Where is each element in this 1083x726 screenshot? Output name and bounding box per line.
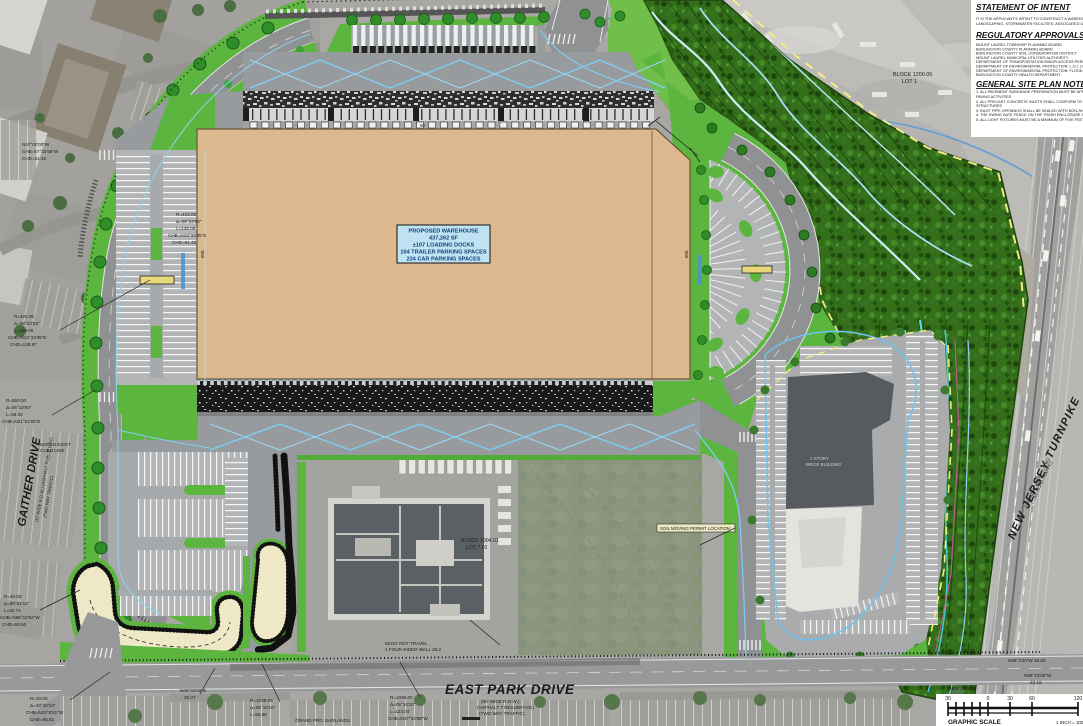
svg-text:N89°29'50"E: N89°29'50"E bbox=[950, 686, 976, 691]
svg-text:±107 LOADING DOCKS: ±107 LOADING DOCKS bbox=[413, 243, 475, 249]
svg-text:1 FOUR-SIDED WALL 28.2: 1 FOUR-SIDED WALL 28.2 bbox=[385, 647, 442, 652]
svg-text:L=59.33: L=59.33 bbox=[6, 412, 23, 417]
svg-text:608: 608 bbox=[200, 250, 205, 258]
svg-text:L=139.09: L=139.09 bbox=[176, 226, 196, 231]
svg-text:CHD=95.81: CHD=95.81 bbox=[30, 717, 55, 722]
svg-text:MATCH EXIST: MATCH EXIST bbox=[40, 442, 71, 447]
svg-text:CHB=N47°33'58"W: CHB=N47°33'58"W bbox=[388, 716, 428, 721]
svg-text:120: 120 bbox=[1074, 696, 1083, 702]
svg-text:N89°23'50"W: N89°23'50"W bbox=[1024, 673, 1052, 678]
svg-text:R=550.00: R=550.00 bbox=[6, 398, 26, 403]
svg-text:1. ALL PAVEMENT SUBGRADE PREP: 1. ALL PAVEMENT SUBGRADE PREPARATION MUS… bbox=[976, 90, 1083, 94]
svg-text:CHD=56.50: CHD=56.50 bbox=[2, 622, 27, 627]
svg-text:Δ=08°23'53": Δ=08°23'53" bbox=[14, 321, 40, 326]
svg-text:GRAND PRD. EARLANDS: GRAND PRD. EARLANDS bbox=[295, 718, 350, 723]
svg-text:CHB=N68°10'52"W: CHB=N68°10'52"W bbox=[0, 615, 40, 620]
svg-text:R=1038.00: R=1038.00 bbox=[250, 698, 273, 703]
svg-text:4. THE SWING GATE FENCE ON TH: 4. THE SWING GATE FENCE ON THE TRASH ENC… bbox=[976, 113, 1083, 117]
svg-text:R=30.00: R=30.00 bbox=[30, 696, 48, 701]
svg-text:CHD=61.45: CHD=61.45 bbox=[172, 240, 197, 245]
svg-text:MUST NOT TRAVEL: MUST NOT TRAVEL bbox=[385, 641, 428, 646]
svg-text:Δ=43°10'10": Δ=43°10'10" bbox=[30, 703, 56, 708]
svg-text:(ASPHALT 7 RESURFACE): (ASPHALT 7 RESURFACE) bbox=[477, 705, 534, 710]
svg-text:BLOCK 1904.01: BLOCK 1904.01 bbox=[461, 538, 499, 544]
svg-text:CHD=61.45: CHD=61.45 bbox=[22, 156, 47, 161]
svg-text:60: 60 bbox=[1029, 696, 1035, 702]
svg-text:437,262 SF: 437,262 SF bbox=[429, 236, 459, 242]
svg-text:N47°00'00"W: N47°00'00"W bbox=[22, 142, 50, 147]
svg-text:LOT 7.01: LOT 7.01 bbox=[466, 545, 488, 551]
svg-text:BRICK BUILDING: BRICK BUILDING bbox=[806, 462, 842, 467]
svg-text:30: 30 bbox=[945, 696, 951, 702]
svg-text:PROPOSED WAREHOUSE: PROPOSED WAREHOUSE bbox=[409, 229, 479, 235]
svg-text:STRUCTURES: STRUCTURES bbox=[976, 104, 1002, 108]
svg-text:5. ALL LIGHT FIXTURES MUST BE: 5. ALL LIGHT FIXTURES MUST BE A MINIMUM … bbox=[976, 118, 1083, 122]
svg-text:Δ=08°23'53": Δ=08°23'53" bbox=[176, 219, 202, 224]
svg-text:Δ=05°10'10": Δ=05°10'10" bbox=[390, 702, 416, 707]
svg-text:L=139.09: L=139.09 bbox=[14, 328, 34, 333]
svg-text:L=124.04: L=124.04 bbox=[390, 709, 410, 714]
svg-text:R=40.00: R=40.00 bbox=[4, 594, 22, 599]
svg-text:PAVING ACTIVITIES: PAVING ACTIVITIES bbox=[976, 95, 1012, 99]
svg-text:BURLINGTON COUNTY HEALTH DEPAR: BURLINGTON COUNTY HEALTH DEPARTMENT bbox=[976, 73, 1061, 77]
svg-text:0: 0 bbox=[987, 696, 990, 702]
svg-text:IT IS THE APPLICANT'S INTENT T: IT IS THE APPLICANT'S INTENT TO CONSTRUC… bbox=[976, 17, 1083, 21]
svg-text:LOT 1: LOT 1 bbox=[902, 79, 917, 85]
svg-text:CHD=138.97: CHD=138.97 bbox=[10, 342, 37, 347]
svg-text:CHB=N23°5'51"W: CHB=N23°5'51"W bbox=[26, 710, 64, 715]
svg-text:1 INCH = 100: 1 INCH = 100 bbox=[1056, 720, 1083, 725]
svg-text:N89°3'20"W 36.00: N89°3'20"W 36.00 bbox=[1008, 658, 1046, 663]
svg-text:1 STORY: 1 STORY bbox=[810, 456, 829, 461]
svg-text:Δ=05°10'10": Δ=05°10'10" bbox=[250, 705, 276, 710]
svg-text:REGULATORY APPROVALS: REGULATORY APPROVALS bbox=[976, 31, 1083, 40]
svg-text:Δ=89°51'15": Δ=89°51'15" bbox=[4, 601, 30, 606]
svg-text:L=62.74: L=62.74 bbox=[4, 608, 21, 613]
svg-text:R=425.00: R=425.00 bbox=[14, 314, 34, 319]
svg-text:LANDSCAPING, STORMWATER FACILI: LANDSCAPING, STORMWATER FACILITIES, ASSO… bbox=[976, 22, 1083, 26]
svg-text:(66' WIDE R.O.W.): (66' WIDE R.O.W.) bbox=[481, 699, 520, 704]
svg-text:30: 30 bbox=[1007, 696, 1013, 702]
svg-text:CURB LINE: CURB LINE bbox=[40, 448, 65, 453]
svg-text:60: 60 bbox=[420, 123, 426, 128]
svg-text:104 TRAILER PARKING SPACES: 104 TRAILER PARKING SPACES bbox=[400, 250, 486, 256]
svg-text:SOIL MOVING PERMIT LOCATION: SOIL MOVING PERMIT LOCATION bbox=[660, 526, 730, 531]
svg-text:GENERAL SITE PLAN NOTES: GENERAL SITE PLAN NOTES bbox=[976, 80, 1083, 89]
svg-text:(TWO WAY TRAFFIC): (TWO WAY TRAFFIC) bbox=[479, 711, 525, 716]
svg-text:R=433.00: R=433.00 bbox=[176, 212, 196, 217]
svg-text:EAST PARK DRIVE: EAST PARK DRIVE bbox=[445, 682, 575, 697]
svg-text:CHB=N13°33'35"E: CHB=N13°33'35"E bbox=[168, 233, 206, 238]
svg-text:R=1066.00: R=1066.00 bbox=[390, 695, 413, 700]
svg-text:CHB=57°33'58"W: CHB=57°33'58"W bbox=[22, 149, 59, 154]
svg-text:808: 808 bbox=[684, 250, 689, 258]
svg-text:Δ=06°10'50": Δ=06°10'50" bbox=[6, 405, 32, 410]
svg-text:BLOCK 1200.05: BLOCK 1200.05 bbox=[893, 72, 932, 78]
svg-text:23.18: 23.18 bbox=[1030, 680, 1042, 685]
svg-text:29.37: 29.37 bbox=[184, 695, 196, 700]
svg-text:60: 60 bbox=[420, 383, 426, 388]
svg-text:L=93.68: L=93.68 bbox=[250, 712, 267, 717]
svg-text:GRAPHIC SCALE: GRAPHIC SCALE bbox=[948, 719, 1002, 726]
svg-text:CHB=N21°51'05"E: CHB=N21°51'05"E bbox=[2, 419, 40, 424]
svg-text:224 CAR PARKING SPACES: 224 CAR PARKING SPACES bbox=[406, 257, 480, 263]
svg-text:STATEMENT OF INTENT: STATEMENT OF INTENT bbox=[976, 3, 1071, 12]
svg-text:CHB=N13°33'35"E: CHB=N13°33'35"E bbox=[8, 335, 46, 340]
